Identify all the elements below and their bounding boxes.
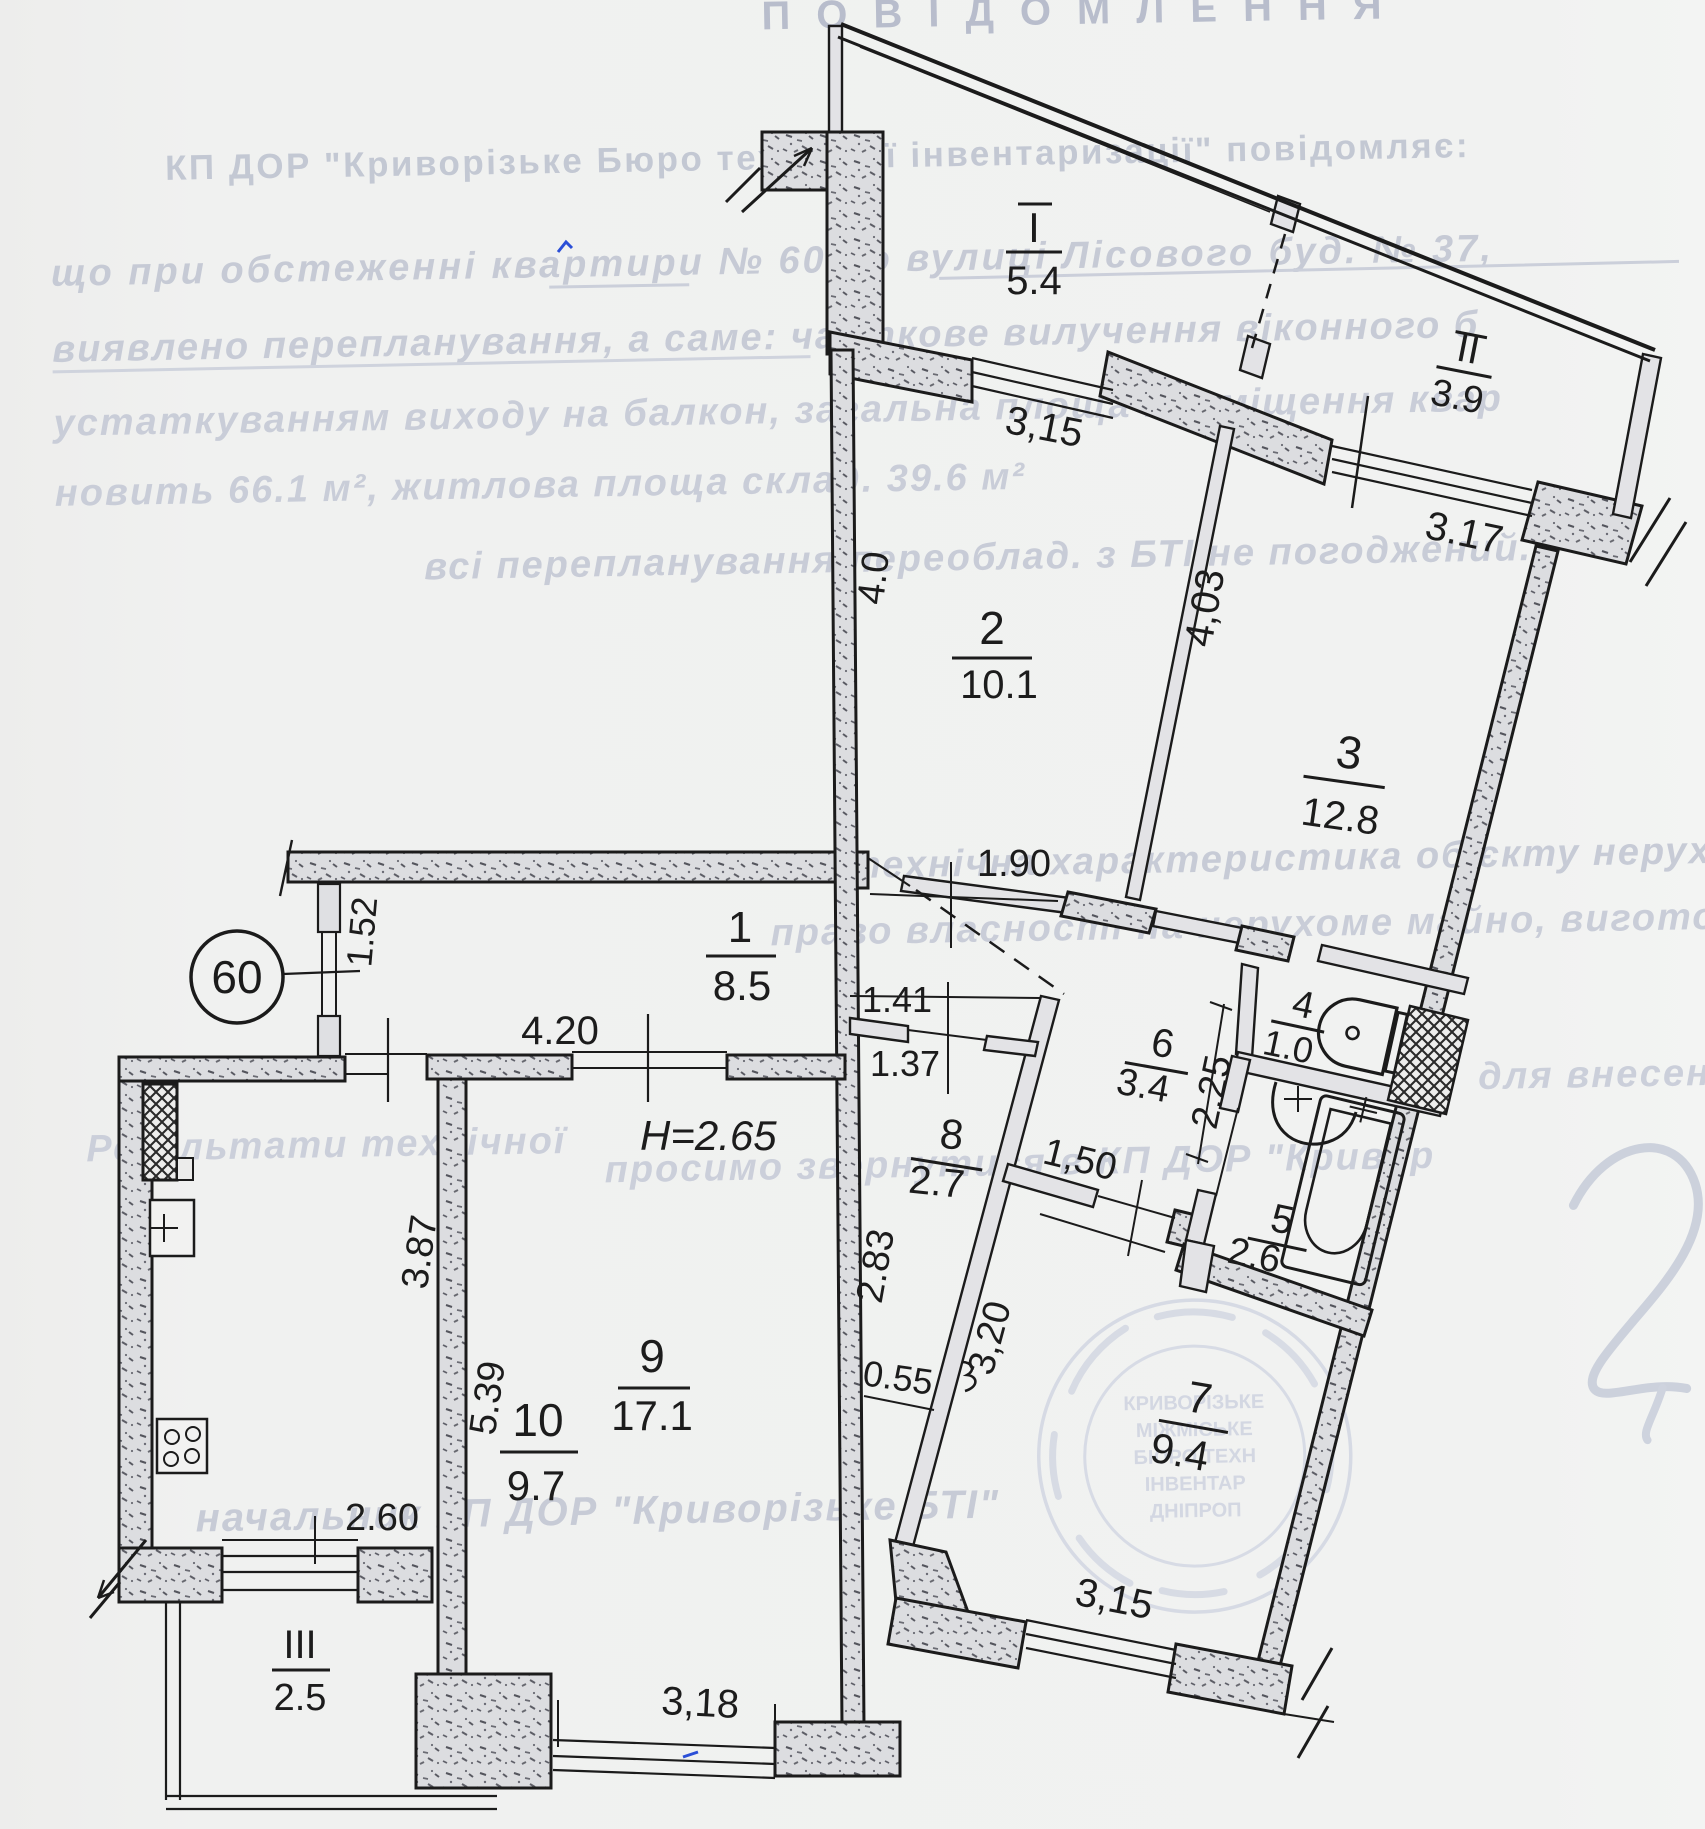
svg-text:2.60: 2.60 xyxy=(345,1497,419,1539)
svg-text:4.0: 4.0 xyxy=(850,549,898,607)
svg-text:1.37: 1.37 xyxy=(870,1043,940,1084)
svg-text:2.7: 2.7 xyxy=(907,1158,967,1208)
svg-text:8: 8 xyxy=(938,1110,966,1159)
svg-text:1: 1 xyxy=(728,903,752,952)
svg-text:I: I xyxy=(1028,204,1040,251)
svg-text:III: III xyxy=(283,1623,316,1667)
svg-text:1.41: 1.41 xyxy=(862,979,932,1020)
svg-text:8.5: 8.5 xyxy=(713,962,771,1009)
svg-text:H=2.65: H=2.65 xyxy=(640,1112,777,1159)
svg-text:5.4: 5.4 xyxy=(1006,259,1062,303)
svg-text:9: 9 xyxy=(639,1330,665,1382)
svg-text:для внесення: для внесення xyxy=(1478,1051,1705,1098)
svg-text:2.5: 2.5 xyxy=(274,1677,327,1719)
svg-text:60: 60 xyxy=(211,951,262,1003)
svg-text:1.52: 1.52 xyxy=(338,895,385,968)
svg-text:17.1: 17.1 xyxy=(611,1392,693,1439)
svg-text:ДНІПРОП: ДНІПРОП xyxy=(1150,1499,1242,1523)
svg-text:9.7: 9.7 xyxy=(507,1462,565,1509)
svg-text:10: 10 xyxy=(512,1394,563,1446)
svg-text:10.1: 10.1 xyxy=(960,663,1038,707)
svg-text:1.90: 1.90 xyxy=(977,843,1051,885)
svg-text:3,18: 3,18 xyxy=(660,1679,740,1727)
svg-text:2: 2 xyxy=(979,602,1005,654)
svg-text:4.20: 4.20 xyxy=(521,1009,599,1053)
svg-text:9.4: 9.4 xyxy=(1147,1424,1213,1480)
